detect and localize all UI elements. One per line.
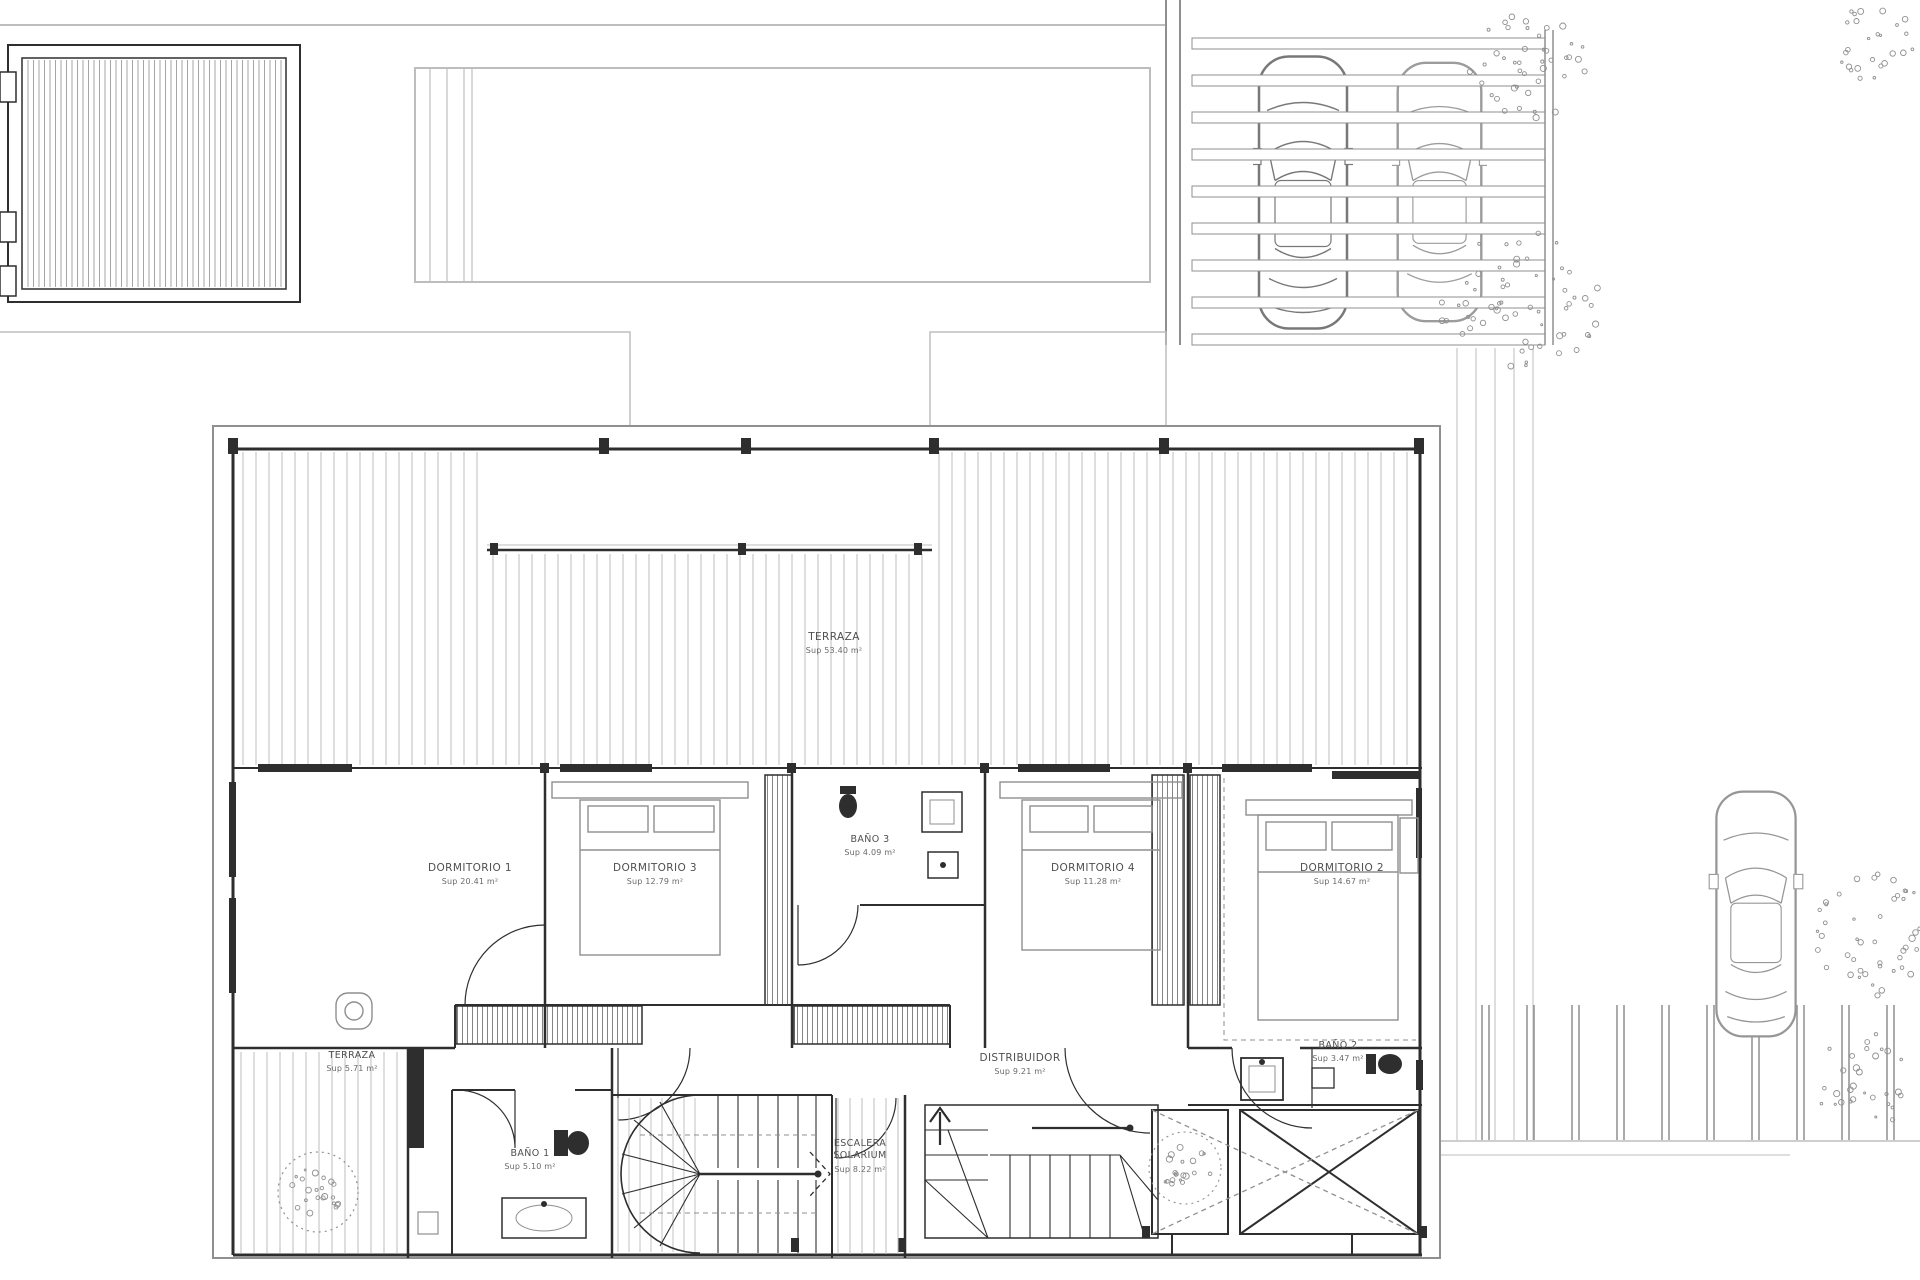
driveway-stripes: [1457, 348, 1533, 1140]
floor-plan-canvas: TERRAZA Sup 53.40 m² DORMITORIO 1 Sup 20…: [0, 0, 1920, 1280]
tree-foliage: [1439, 8, 1920, 1122]
floor-plan-linework: [0, 0, 1920, 1280]
garden-fence: [1482, 1005, 1894, 1140]
duct-wall: [408, 1048, 424, 1148]
building: [213, 426, 1440, 1258]
pergola-slats: [1192, 38, 1545, 345]
wood-deck: [0, 45, 300, 302]
car-icon: [1709, 792, 1803, 1037]
pool: [415, 68, 1150, 282]
carport: [1192, 30, 1553, 345]
